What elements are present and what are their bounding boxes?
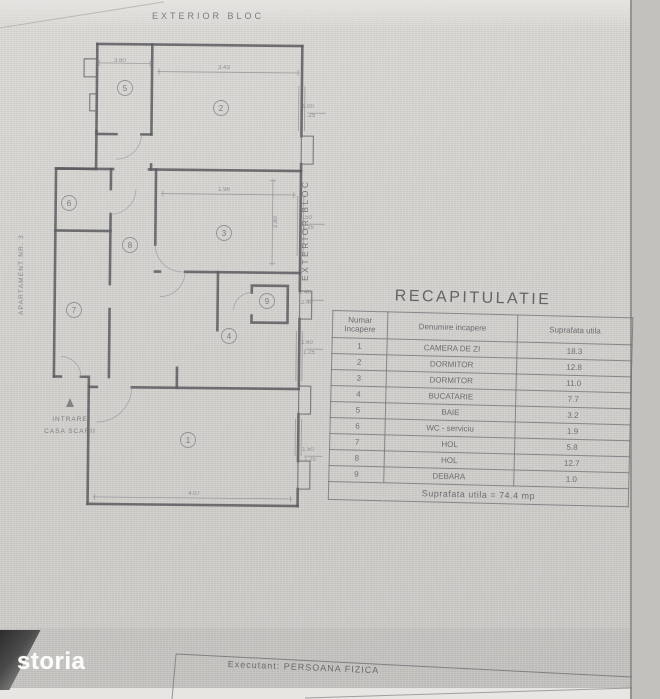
entrance-caption: INTRARE CASA SCARII [30, 414, 110, 438]
dimension-label: .25 [307, 113, 316, 119]
room-number: 2 [219, 104, 224, 113]
recap-cell-num: 9 [329, 465, 384, 482]
room-number: 6 [67, 199, 72, 208]
room-number: 5 [123, 84, 128, 93]
dimension-label: 1.00 [302, 104, 314, 110]
recap-cell-num: 7 [330, 433, 385, 450]
recap-cell-num: 2 [331, 353, 386, 370]
col-header-suprafata: Suprafata utila [517, 315, 633, 345]
storia-watermark: storia [17, 648, 85, 676]
room-number: 3 [222, 229, 227, 238]
dimension-label: 3.60 [114, 58, 126, 64]
recap-cell-num: 1 [332, 337, 387, 354]
room-number: 4 [227, 332, 232, 341]
recap-cell-num: 8 [329, 449, 384, 466]
dimension-label: 3.43 [218, 65, 230, 71]
room-number: 9 [265, 297, 270, 306]
recap-cell-num: 4 [331, 385, 386, 402]
entrance-arrow-icon [66, 398, 74, 407]
entrance-line2: CASA SCARII [30, 426, 110, 438]
room-number: 8 [128, 241, 133, 250]
entrance-line1: INTRARE [30, 414, 110, 426]
dimension-label: 1.25 [304, 457, 316, 463]
label-exterior-bloc-top: EXTERIOR BLOC [152, 11, 264, 21]
dimension-label: 4.07 [188, 491, 200, 497]
recap-table: Numar Incapere Denumire incapere Suprafa… [328, 310, 634, 507]
recapitulation-section: RECAPITULATIE Numar Incapere Denumire in… [328, 286, 623, 507]
room-number: 7 [72, 306, 77, 315]
dimension-label: 1.96 [218, 187, 230, 193]
recap-cell-num: 3 [331, 369, 386, 386]
col-header-numar: Numar Incapere [332, 311, 388, 339]
dimension-label: 1.25 [303, 350, 315, 356]
label-apartament-nr: APARTAMENT NR. 3 [18, 215, 25, 315]
label-exterior-bloc-right: EXTERIOR BLOC [300, 195, 310, 281]
dimension-label: 1.50 [302, 447, 314, 453]
col-header-denumire: Denumire incapere [387, 312, 518, 342]
dimension-label: 2.80 [273, 216, 279, 228]
dimension-label: 1.60 [301, 340, 313, 346]
recap-cell-num: 5 [330, 401, 385, 418]
room-number: 1 [186, 436, 191, 445]
dimension-label: 2.40 [299, 290, 311, 296]
dimension-label: 2.40 [301, 300, 313, 306]
recap-cell-num: 6 [330, 417, 385, 434]
